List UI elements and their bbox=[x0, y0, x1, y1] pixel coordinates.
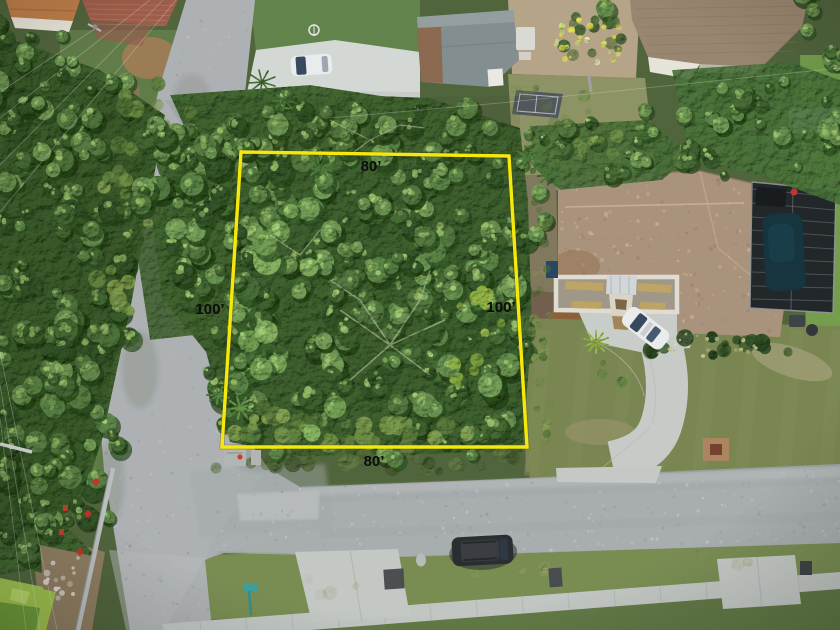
svg-text:100’: 100’ bbox=[486, 299, 515, 316]
svg-text:80’: 80’ bbox=[361, 158, 382, 175]
svg-text:100’: 100’ bbox=[195, 301, 224, 318]
svg-text:80’: 80’ bbox=[364, 453, 385, 470]
